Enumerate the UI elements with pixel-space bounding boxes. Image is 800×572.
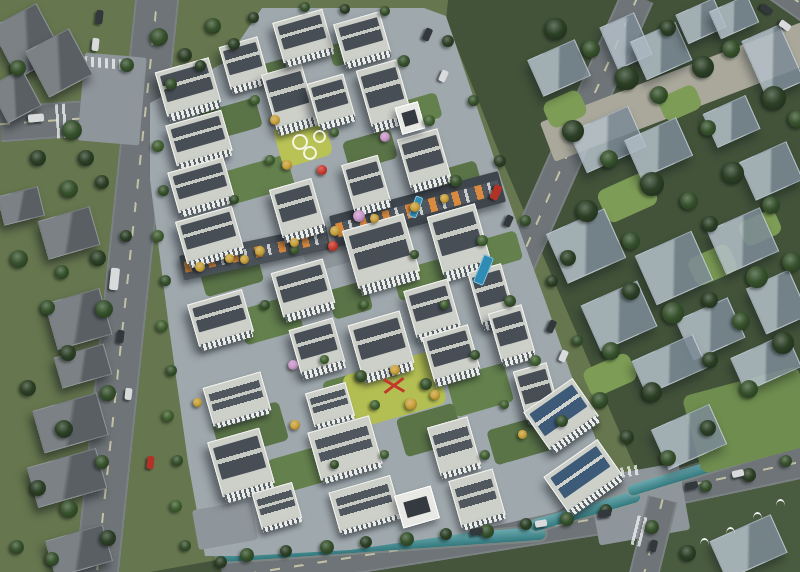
tree — [470, 350, 480, 360]
tree — [562, 120, 584, 142]
tree — [270, 115, 280, 125]
tree — [230, 195, 239, 204]
tree — [592, 392, 608, 408]
tree — [20, 380, 36, 396]
tree — [205, 18, 221, 34]
tree — [228, 38, 240, 50]
tree — [400, 532, 414, 546]
tree — [424, 115, 435, 126]
tree — [95, 455, 109, 469]
tree — [240, 255, 249, 264]
tree — [530, 355, 541, 366]
tree — [680, 192, 698, 210]
tree — [380, 6, 390, 16]
playground-path-marking — [313, 130, 326, 143]
tree — [180, 540, 191, 551]
tree — [156, 320, 168, 332]
bird — [726, 527, 735, 534]
tree — [700, 420, 716, 436]
tree — [353, 210, 365, 222]
tree — [60, 345, 76, 361]
tree — [622, 232, 640, 250]
tree — [340, 4, 350, 14]
tree — [193, 398, 202, 407]
tree — [360, 536, 372, 548]
tree — [330, 128, 339, 137]
tree — [782, 252, 800, 272]
tree — [680, 545, 696, 561]
red-ball-plaza — [328, 241, 338, 251]
playground-path-marking — [303, 146, 317, 160]
tree — [150, 28, 168, 46]
car — [28, 113, 45, 122]
tree — [480, 450, 490, 460]
tree — [442, 35, 454, 47]
tree — [468, 95, 479, 106]
red-ball-north — [317, 165, 327, 175]
tree — [440, 300, 449, 309]
tree — [152, 140, 164, 152]
tree — [405, 398, 417, 410]
tree — [640, 172, 664, 196]
tree — [450, 175, 462, 187]
tree — [300, 2, 310, 12]
tree — [225, 254, 234, 263]
context-building-west — [38, 206, 101, 259]
tree — [290, 420, 300, 430]
tree — [572, 335, 583, 346]
tree — [55, 420, 73, 438]
tree — [518, 430, 527, 439]
tree — [700, 480, 712, 492]
tree — [477, 235, 488, 246]
tree — [330, 460, 339, 469]
tree — [440, 194, 449, 203]
tree — [700, 120, 716, 136]
tree — [645, 520, 659, 534]
tree — [95, 300, 113, 318]
tree — [178, 48, 192, 62]
tree — [370, 214, 379, 223]
tree — [240, 548, 254, 562]
tree — [746, 266, 768, 288]
tree — [370, 400, 380, 410]
tree — [702, 216, 718, 232]
car — [146, 456, 154, 470]
tree — [500, 400, 509, 409]
tree — [62, 120, 82, 140]
tree — [420, 378, 432, 390]
tree — [250, 95, 260, 105]
tree — [45, 552, 59, 566]
tree — [215, 556, 227, 568]
tree — [662, 302, 684, 324]
car — [91, 38, 99, 52]
tree — [165, 78, 177, 90]
tree — [660, 20, 676, 36]
tree — [195, 60, 206, 71]
tree — [440, 528, 452, 540]
tree — [780, 455, 792, 467]
tree — [762, 86, 786, 110]
tree — [504, 295, 516, 307]
tree — [615, 66, 639, 90]
tree — [556, 415, 568, 427]
tree — [390, 365, 400, 375]
tree — [650, 86, 668, 104]
tree — [55, 265, 69, 279]
tree — [380, 450, 389, 459]
tree — [692, 56, 714, 78]
tree — [772, 332, 794, 354]
car — [124, 388, 132, 401]
tree — [90, 250, 106, 266]
tree — [255, 246, 265, 256]
car — [95, 10, 103, 25]
tree — [660, 450, 676, 466]
tree — [602, 342, 620, 360]
tree — [722, 162, 744, 184]
tree — [582, 40, 600, 58]
tree — [722, 40, 740, 58]
tree — [520, 215, 531, 226]
tree — [40, 300, 55, 315]
tree — [78, 150, 94, 166]
tree — [620, 430, 634, 444]
tree — [360, 300, 369, 309]
tree — [520, 518, 532, 530]
tree — [320, 540, 334, 554]
red-art-south-park — [384, 378, 404, 392]
bird — [700, 538, 709, 545]
tree — [732, 312, 750, 330]
tree — [172, 455, 183, 466]
tree — [30, 150, 46, 166]
tree — [642, 382, 662, 402]
tree — [576, 200, 598, 222]
tree — [170, 500, 182, 512]
tree — [355, 370, 367, 382]
tree — [288, 360, 298, 370]
bird — [776, 499, 785, 506]
tree — [702, 352, 718, 368]
tree — [60, 180, 78, 198]
tree — [702, 292, 718, 308]
tree — [152, 230, 164, 242]
tree — [248, 12, 259, 23]
tree — [10, 250, 28, 268]
tree — [100, 385, 116, 401]
tree — [30, 480, 46, 496]
tree — [546, 275, 558, 287]
tree — [10, 60, 26, 76]
tree — [740, 380, 758, 398]
tree — [162, 410, 174, 422]
tree — [600, 150, 618, 168]
bird — [753, 512, 762, 519]
tree — [265, 155, 275, 165]
tree — [120, 230, 132, 242]
tree — [290, 238, 299, 247]
tree — [95, 175, 109, 189]
tree — [622, 282, 640, 300]
car — [116, 330, 124, 344]
tree — [398, 55, 410, 67]
tree — [60, 500, 78, 518]
tree — [410, 202, 420, 212]
tree — [762, 196, 780, 214]
tree — [330, 226, 340, 236]
tree — [430, 390, 440, 400]
tree — [560, 250, 576, 266]
aerial-rendering-residential-masterplan — [0, 0, 800, 572]
tree — [195, 262, 205, 272]
tree — [545, 18, 567, 40]
tree — [260, 300, 270, 310]
tree — [166, 365, 177, 376]
tree — [100, 530, 116, 546]
tree — [158, 185, 169, 196]
tree — [380, 132, 390, 142]
tree — [282, 160, 292, 170]
tree — [788, 110, 800, 128]
tree — [160, 275, 171, 286]
tree — [120, 58, 134, 72]
tree — [494, 155, 506, 167]
tree — [280, 545, 292, 557]
tree — [10, 540, 24, 554]
tree — [320, 355, 329, 364]
tree — [410, 250, 419, 259]
tree — [560, 512, 574, 526]
